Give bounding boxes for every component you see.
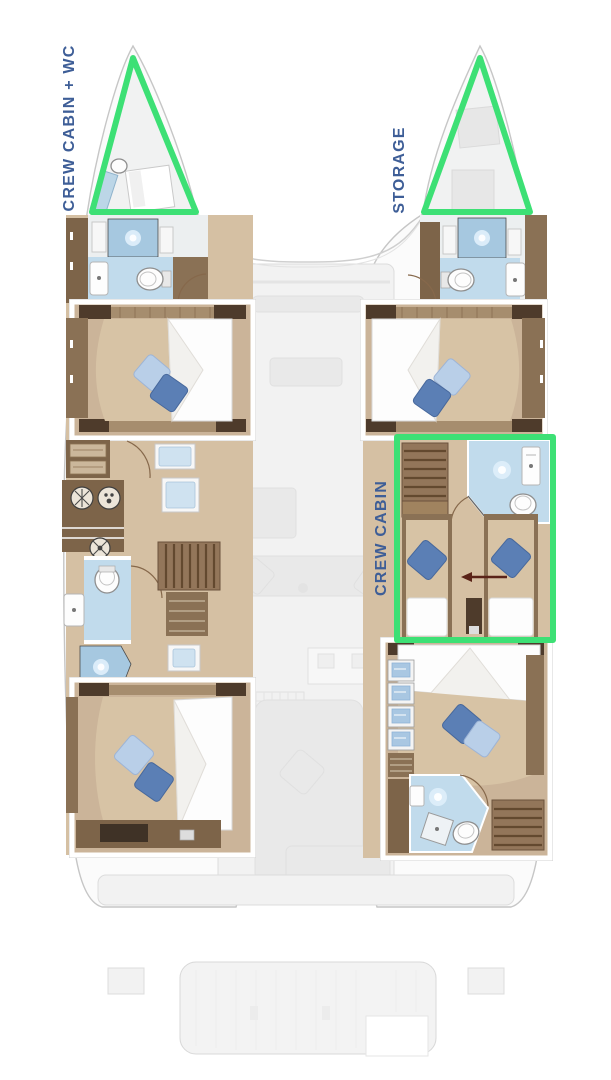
toilet-icon xyxy=(441,269,474,291)
double-bed xyxy=(398,645,540,786)
port-aft-cabin xyxy=(66,678,256,858)
crew-cabin-region xyxy=(397,437,553,640)
hob-unit xyxy=(62,480,124,518)
double-bed xyxy=(95,697,232,830)
shower-icon xyxy=(458,218,506,258)
double-bed xyxy=(96,319,232,421)
double-bed xyxy=(372,319,519,421)
sink-icon xyxy=(410,786,424,806)
port-hull-interior xyxy=(62,58,256,858)
crew-bed xyxy=(402,514,452,638)
fore-cockpit-seat-ghost xyxy=(252,296,364,312)
dryer-icon xyxy=(98,487,120,509)
toilet-icon xyxy=(95,566,119,593)
port-forward-cabin xyxy=(66,300,256,441)
floorplan-svg: CREW CABIN + WC STORAGE CREW CABIN xyxy=(0,0,611,1080)
toilet-icon xyxy=(510,494,536,516)
label-crew-cabin: CREW CABIN xyxy=(373,480,390,596)
galley-counter xyxy=(62,518,124,558)
stairs-icon xyxy=(492,800,544,850)
shelf-unit xyxy=(66,440,110,478)
label-storage: STORAGE xyxy=(391,126,408,213)
starboard-forward-cabin xyxy=(361,300,548,441)
starboard-hull-interior xyxy=(361,58,554,861)
starboard-forward-bathroom xyxy=(408,215,547,305)
wardrobe xyxy=(388,753,414,777)
toilet-icon xyxy=(111,159,127,173)
shower-icon xyxy=(108,219,158,257)
storage-locker xyxy=(452,170,494,212)
label-crew-cabin-wc: CREW CABIN + WC xyxy=(61,45,78,212)
starboard-aft-cabin xyxy=(381,638,553,861)
toilet-icon xyxy=(137,268,171,290)
floorplan-page: CREW CABIN + WC STORAGE CREW CABIN xyxy=(0,0,611,1080)
fore-cockpit-table-ghost xyxy=(270,358,342,386)
port-forward-bathroom xyxy=(66,215,208,303)
storage-region xyxy=(424,58,530,212)
stairs-icon xyxy=(158,542,220,590)
wardrobe xyxy=(166,592,208,636)
aft-cabinets xyxy=(76,820,221,848)
bench-seat xyxy=(168,645,200,671)
stairs-icon xyxy=(402,443,448,517)
bench-seat xyxy=(155,444,195,469)
bench-seat xyxy=(162,478,199,512)
stern-platform-ghost xyxy=(98,875,514,1056)
